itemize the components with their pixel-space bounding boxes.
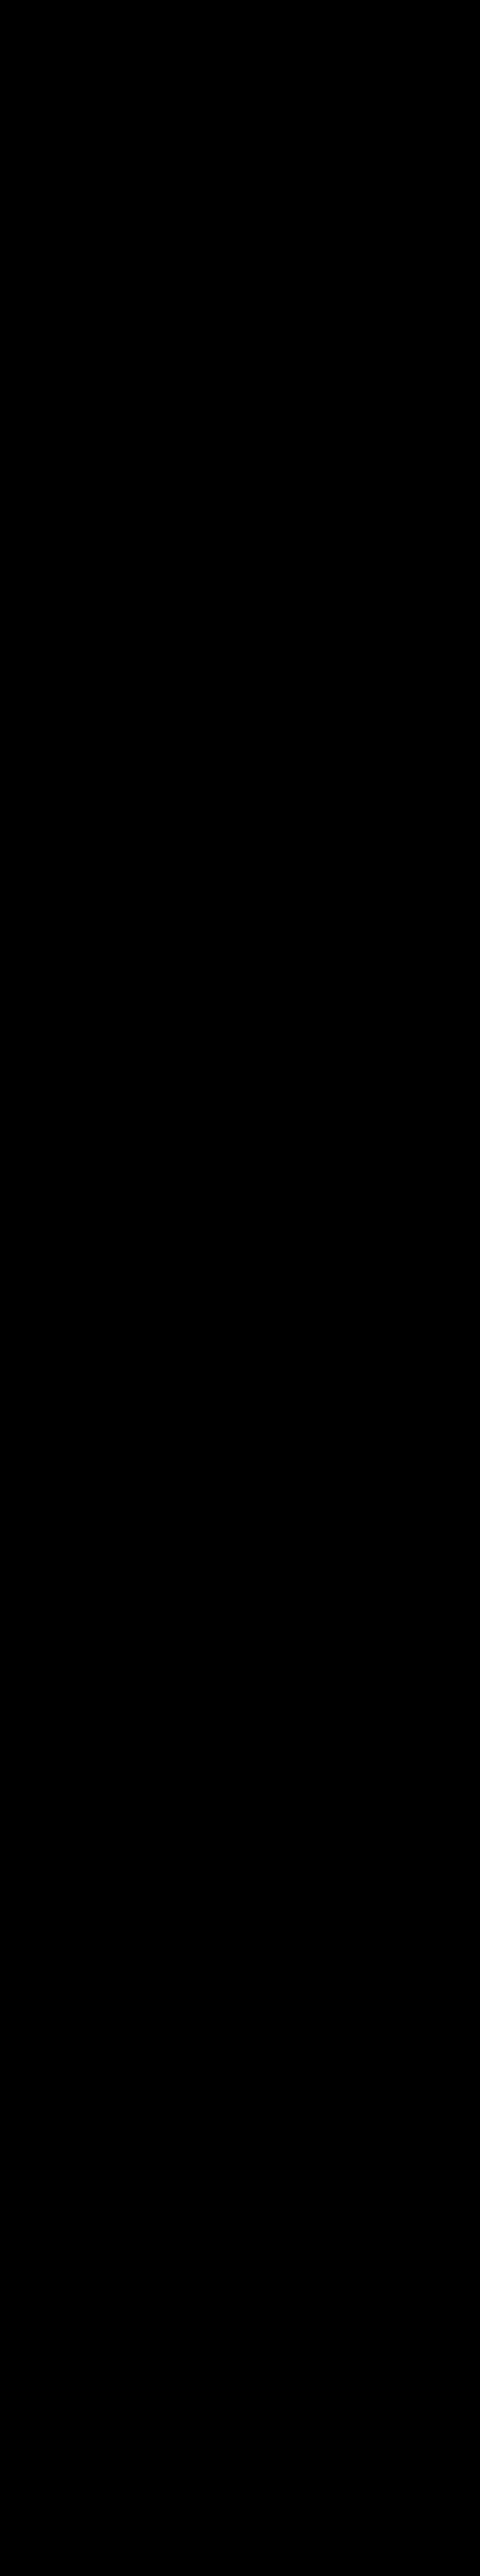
bracelet-pattern-canvas xyxy=(0,0,480,2576)
